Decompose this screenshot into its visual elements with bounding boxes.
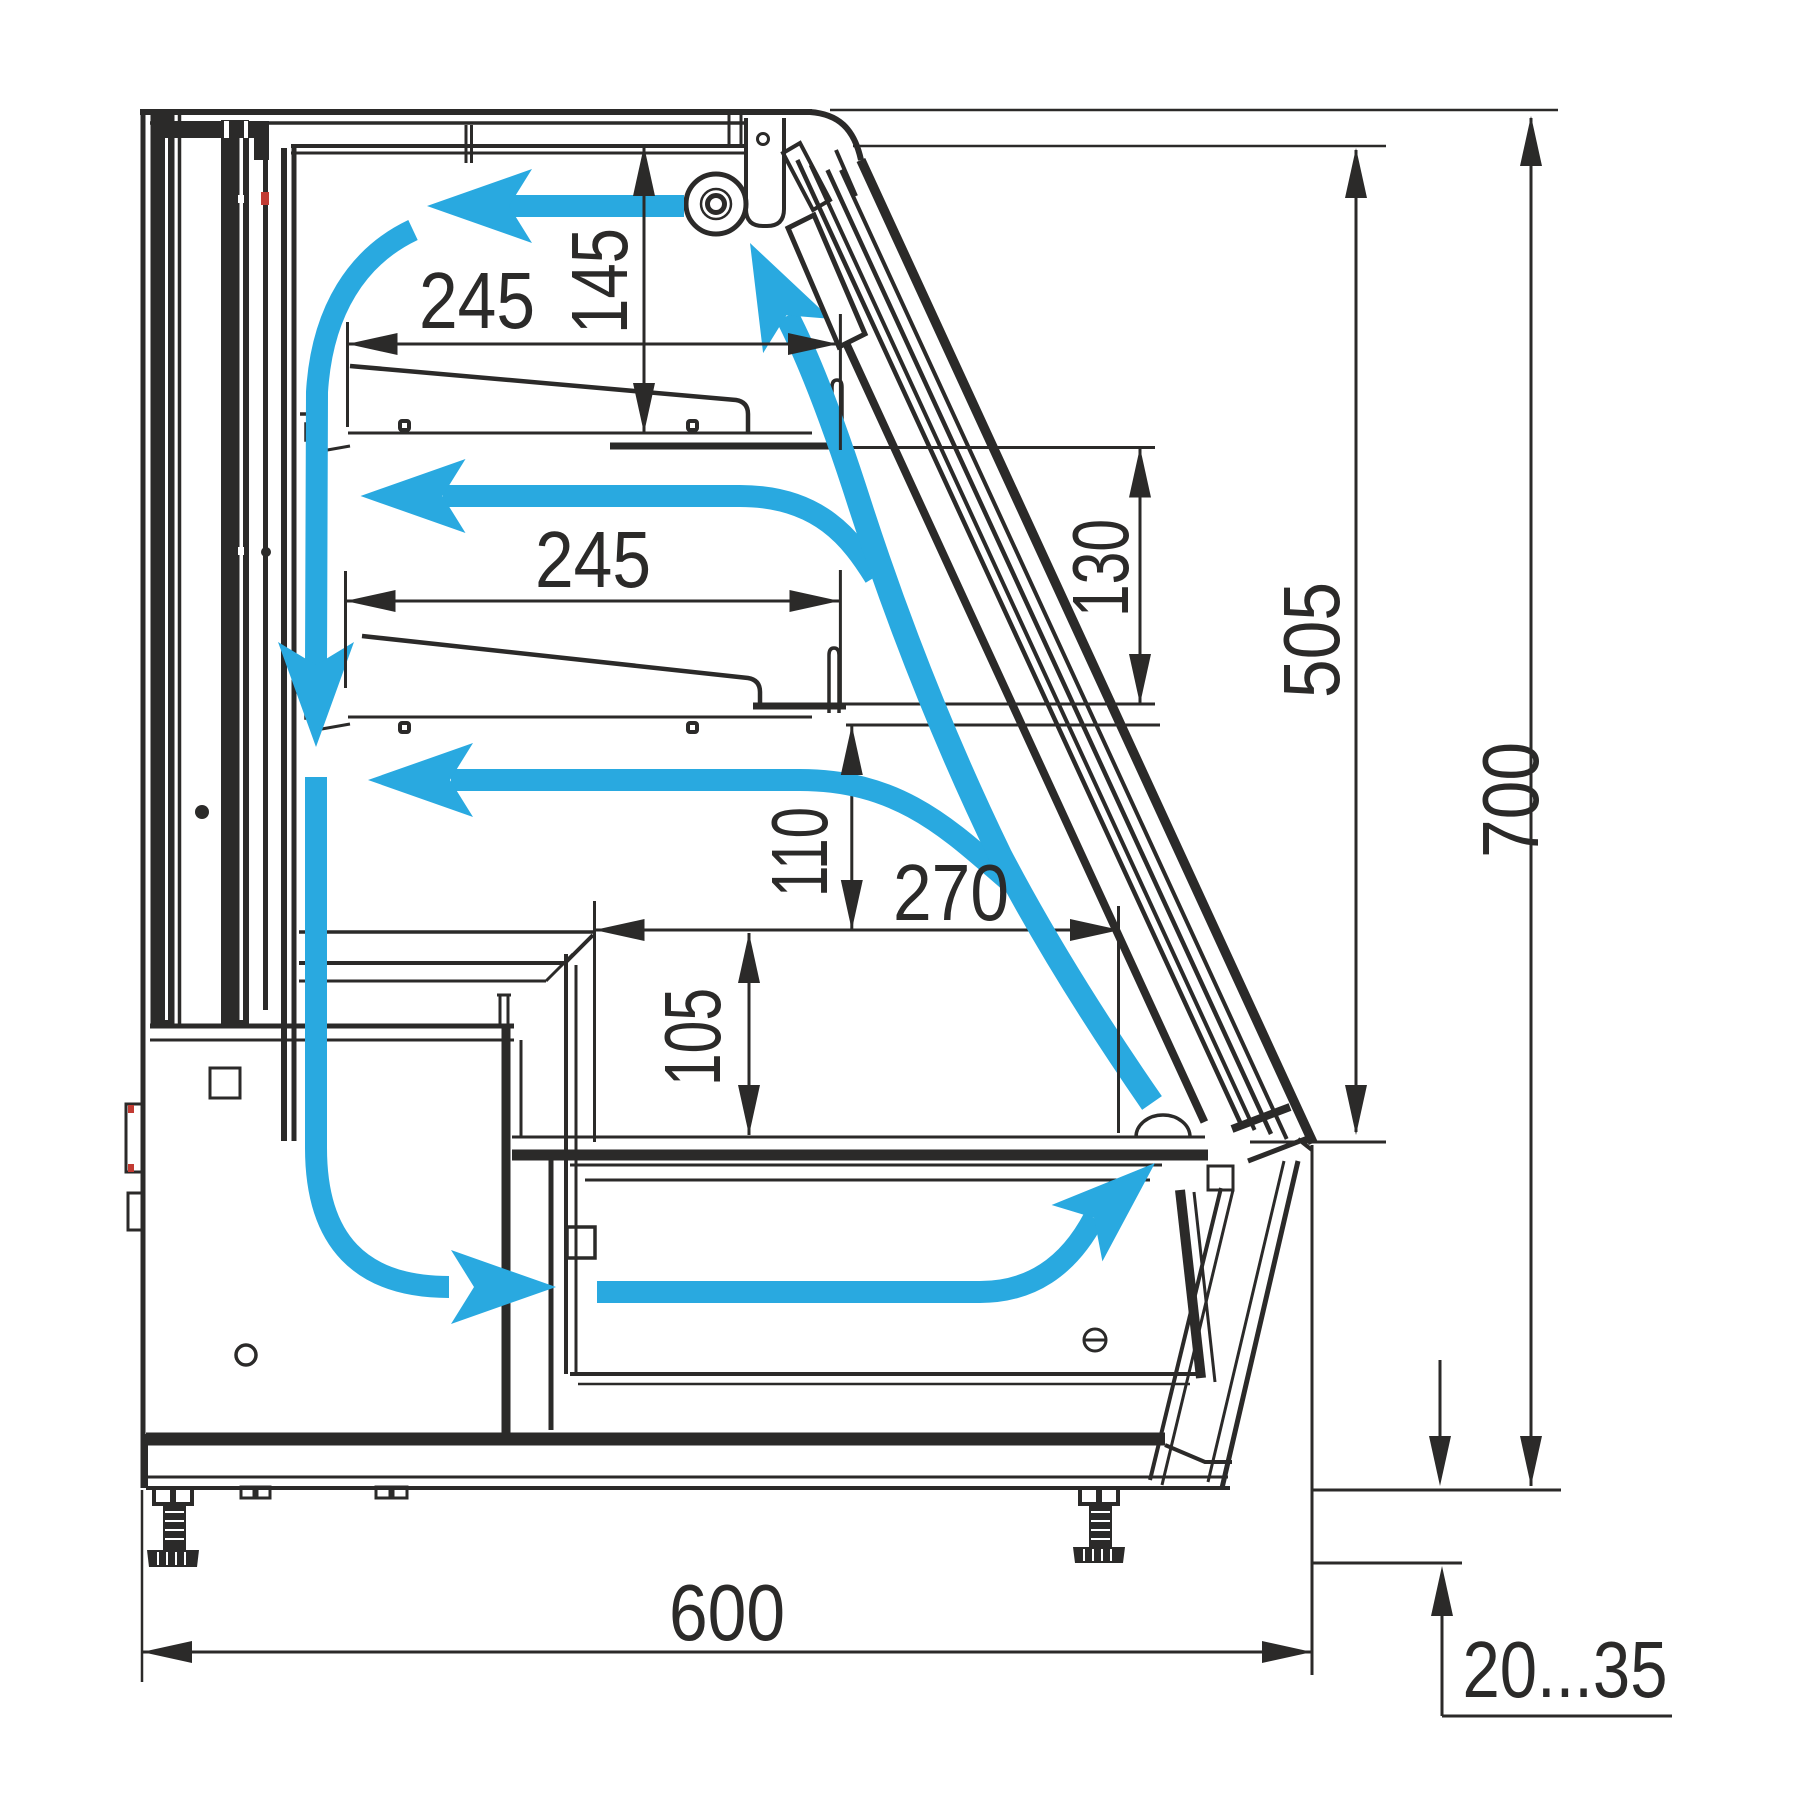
svg-text:245: 245 — [419, 256, 535, 345]
svg-text:105: 105 — [648, 988, 737, 1086]
svg-text:245: 245 — [535, 515, 651, 604]
svg-text:505: 505 — [1267, 582, 1356, 698]
svg-text:270: 270 — [893, 848, 1009, 937]
svg-text:600: 600 — [669, 1568, 785, 1657]
svg-text:145: 145 — [555, 228, 644, 334]
svg-text:20...35: 20...35 — [1463, 1625, 1668, 1714]
svg-text:700: 700 — [1466, 742, 1555, 858]
svg-text:130: 130 — [1056, 519, 1145, 617]
svg-text:110: 110 — [755, 807, 844, 897]
